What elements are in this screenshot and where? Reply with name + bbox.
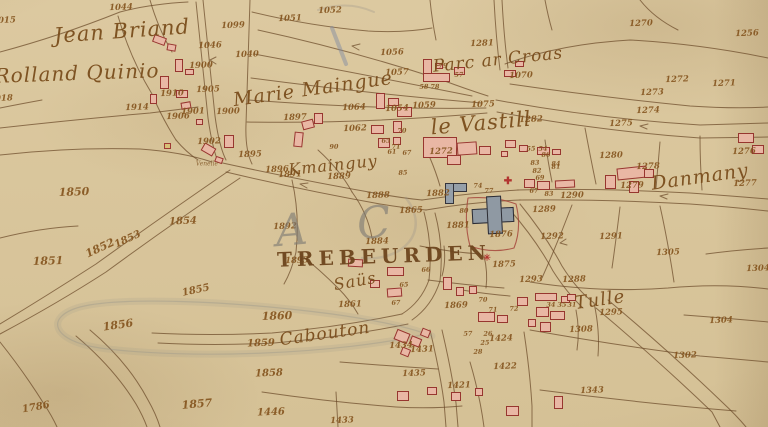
symbols-layer: ✚✳ [0,0,768,427]
red-star-icon: ✳ [483,255,491,264]
red-cross-icon: ✚ [504,177,512,187]
map-canvas[interactable]: 1044101510991046104019001905191019141901… [0,0,768,427]
